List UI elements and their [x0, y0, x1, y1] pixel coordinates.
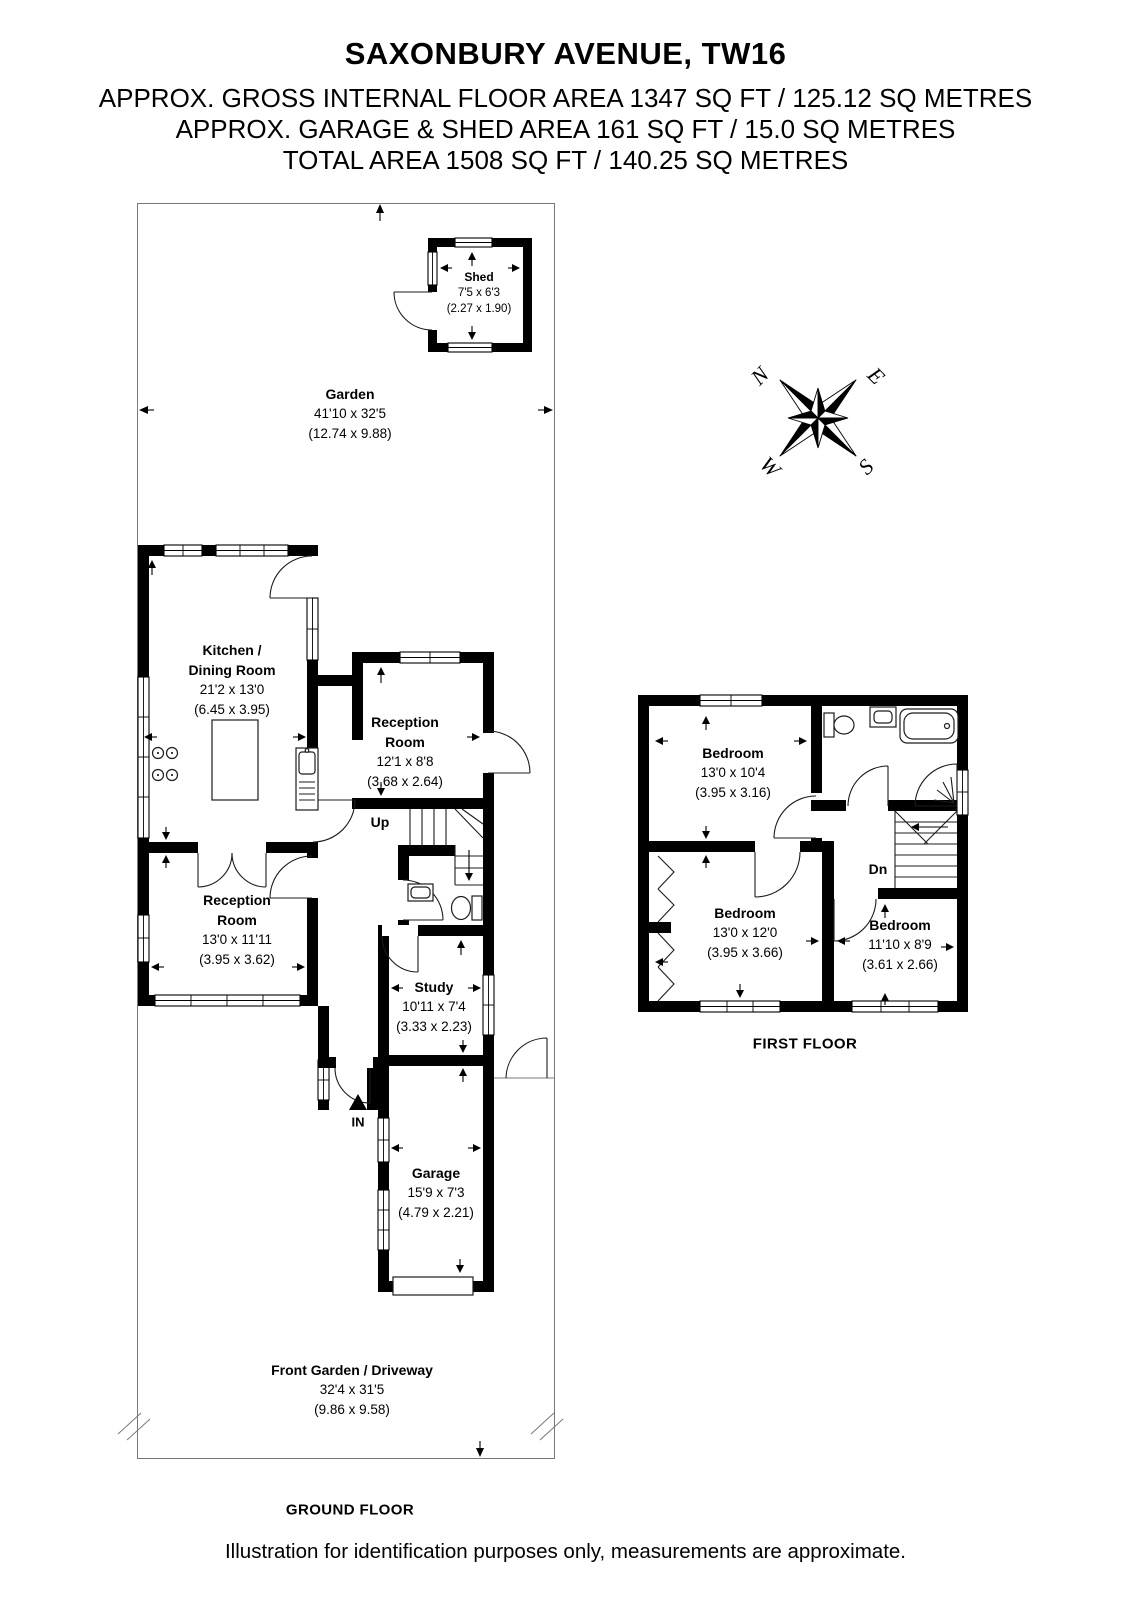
room-label-bedroom-1: Bedroom 13'0 x 10'4 (3.95 x 3.16)	[695, 743, 771, 803]
kitchen-sink-icon	[296, 748, 318, 810]
room-label-garage: Garage 15'9 x 7'3 (4.79 x 2.21)	[398, 1163, 474, 1223]
shower-icon	[915, 764, 957, 806]
compass-west-label: W	[755, 451, 787, 483]
floorplan-page: SAXONBURY AVENUE, TW16 APPROX. GROSS INT…	[0, 0, 1131, 1600]
room-label-reception-1: Reception Room 12'1 x 8'8 (3.68 x 2.64)	[359, 712, 451, 792]
stairs-up-label: Up	[371, 814, 390, 830]
stove-icon	[153, 748, 178, 781]
entrance-in-label: IN	[352, 1115, 365, 1130]
room-label-reception-2: Reception Room 13'0 x 11'11 (3.95 x 3.62…	[191, 890, 283, 970]
compass-north-label: N	[745, 361, 775, 391]
bathtub-icon	[900, 709, 958, 743]
compass-rose-icon: N E S W	[742, 342, 895, 495]
compass-east-label: E	[862, 361, 890, 389]
room-label-kitchen-dining: Kitchen / Dining Room 21'2 x 13'0 (6.45 …	[180, 640, 284, 720]
toilet-icon	[452, 896, 483, 920]
garage-door	[393, 1277, 473, 1295]
compass-south-label: S	[853, 454, 878, 479]
stairs-first	[895, 811, 957, 888]
room-label-bedroom-2: Bedroom 13'0 x 12'0 (3.95 x 3.66)	[707, 903, 783, 963]
in-arrow-icon	[349, 1094, 367, 1110]
stairs-down-label: Dn	[869, 861, 888, 877]
shed-door-swing	[394, 292, 432, 330]
room-label-bedroom-3: Bedroom 11'10 x 8'9 (3.61 x 2.66)	[862, 915, 938, 975]
room-label-shed: Shed 7'5 x 6'3 (2.27 x 1.90)	[447, 269, 512, 317]
first-floor-caption: FIRST FLOOR	[753, 1036, 857, 1053]
floor-plan-canvas: N E S W	[0, 0, 1131, 1600]
room-label-front-garden: Front Garden / Driveway 32'4 x 31'5 (9.8…	[271, 1360, 433, 1420]
kitchen-island	[212, 720, 258, 800]
room-label-study: Study 10'11 x 7'4 (3.33 x 2.23)	[396, 977, 472, 1037]
bathroom-sink-icon	[870, 707, 896, 727]
room-label-garden: Garden 41'10 x 32'5 (12.74 x 9.88)	[308, 384, 391, 444]
door-swings-ground	[198, 556, 530, 1103]
toilet-icon	[824, 713, 854, 737]
wc-sink-icon	[408, 884, 433, 901]
disclaimer-text: Illustration for identification purposes…	[0, 1540, 1131, 1564]
gate-door	[494, 1038, 554, 1078]
ground-floor-caption: GROUND FLOOR	[286, 1502, 414, 1519]
